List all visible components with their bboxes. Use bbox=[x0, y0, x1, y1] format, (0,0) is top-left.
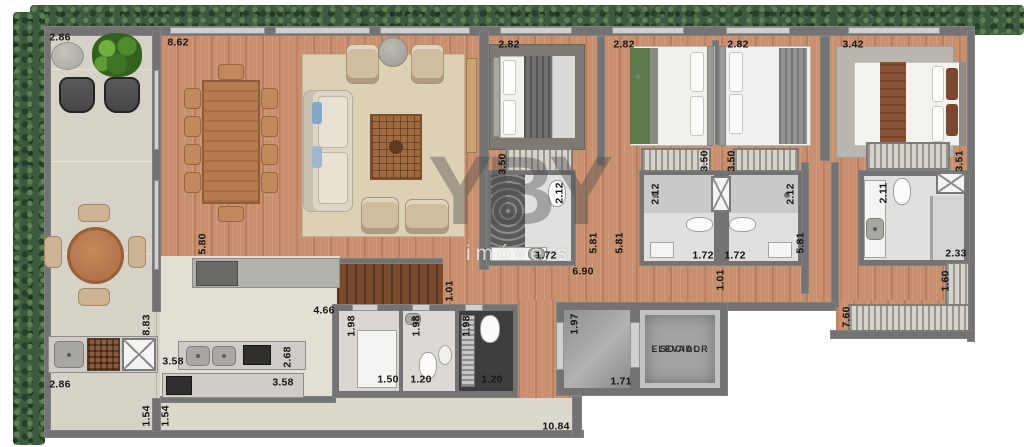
dim-hall-cell-depth: 1.97 bbox=[570, 313, 581, 334]
side-table-round bbox=[378, 37, 408, 67]
master-bath-shaft bbox=[936, 172, 966, 194]
dark-deck-floor bbox=[337, 264, 443, 304]
dim-bedroom1-width: 2.82 bbox=[498, 40, 519, 51]
dim-counter-width-b: 3.58 bbox=[272, 378, 293, 389]
dim-hall-cell-width: 1.71 bbox=[610, 377, 631, 388]
dim-master-width: 3.42 bbox=[842, 40, 863, 51]
service-door-2 bbox=[412, 304, 430, 311]
bedroom3-pillow-1 bbox=[729, 52, 743, 92]
wall-bed3-master bbox=[820, 36, 830, 161]
bedroom1-blanket-foot bbox=[552, 56, 575, 138]
bedroom1-bed-headboard bbox=[493, 57, 500, 137]
elevator-label: ELEVADOR SOCIAL bbox=[640, 310, 720, 388]
dim-bath3-depth: 2.12 bbox=[786, 183, 797, 204]
dim-service-bath-width: 1.20 bbox=[481, 375, 502, 386]
kitchen-island-cooktop bbox=[196, 261, 238, 286]
dining-chair bbox=[261, 172, 278, 193]
elevator-door-gap-2 bbox=[630, 322, 640, 368]
master-bath-toilet bbox=[893, 178, 911, 205]
dim-hall-depth-c: 5.81 bbox=[796, 232, 807, 253]
dim-kitchen-width: 4.66 bbox=[313, 306, 334, 317]
floor-plan: ELEVADOR SOCIAL YBY imóveis 2.86 8.62 2.… bbox=[0, 0, 1024, 447]
service-door-1 bbox=[352, 304, 378, 311]
sofa-cushion-2 bbox=[318, 152, 348, 204]
master-bath-sink bbox=[866, 218, 884, 240]
dim-laundry-width: 1.50 bbox=[377, 375, 398, 386]
dim-bbq-width: 2.86 bbox=[49, 380, 70, 391]
dim-living-depth: 5.80 bbox=[198, 233, 209, 254]
bottom-corridor-floor bbox=[160, 398, 574, 432]
window-bedroom2 bbox=[612, 27, 684, 34]
wall-bed1-bed2 bbox=[597, 36, 605, 166]
elevator-door-gap-1 bbox=[556, 322, 564, 370]
window-master bbox=[848, 27, 940, 34]
dim-bedroom3-depth: 3.50 bbox=[727, 150, 738, 171]
bedroom2-bolster bbox=[650, 48, 658, 144]
master-headboard bbox=[959, 62, 966, 146]
bedroom3-pillow-2 bbox=[729, 94, 743, 134]
master-cushion-2 bbox=[946, 104, 958, 136]
window-living-1 bbox=[170, 27, 265, 34]
bedroom2-headboard bbox=[707, 46, 714, 146]
balcony-round-table bbox=[67, 227, 124, 284]
dim-service-pass-a: 1.54 bbox=[142, 405, 153, 426]
dim-bath2-width: 1.72 bbox=[692, 251, 713, 262]
bbq-grill bbox=[87, 338, 120, 371]
armchair-top-2 bbox=[411, 44, 444, 84]
balcony-table-chair-n bbox=[78, 204, 110, 222]
bedroom3-headboard bbox=[719, 46, 726, 146]
dim-living-width: 8.62 bbox=[167, 38, 188, 49]
dim-bath2-depth: 2.12 bbox=[651, 183, 662, 204]
dim-bath3-width: 1.72 bbox=[724, 251, 745, 262]
dim-hall-length: 6.90 bbox=[572, 267, 593, 278]
dim-pass-living: 1.01 bbox=[445, 280, 456, 301]
dim-hall-depth-b: 5.81 bbox=[615, 232, 626, 253]
wall-left bbox=[44, 30, 51, 438]
coffee-table-bowl bbox=[389, 140, 403, 154]
dining-table bbox=[202, 80, 260, 204]
bedroom2-pillow-1 bbox=[690, 52, 704, 92]
armchair-bottom-1 bbox=[361, 197, 399, 234]
service-bath-toilet bbox=[480, 315, 500, 343]
dim-service-bath-depth: 1.98 bbox=[462, 315, 473, 336]
sofa-pillow-blue-2 bbox=[312, 146, 322, 168]
dim-closet-depth: 1.60 bbox=[941, 270, 952, 291]
dining-chair-head-n bbox=[218, 64, 244, 80]
wall-master-suite bbox=[831, 162, 839, 308]
wardrobe-bedroom3 bbox=[733, 148, 799, 172]
balcony-door-glass-a bbox=[154, 70, 159, 150]
dim-bath1-depth: 2.12 bbox=[555, 182, 566, 203]
tv-console bbox=[466, 58, 477, 153]
sofa-cushion-1 bbox=[318, 96, 348, 148]
dining-chair-head-s bbox=[218, 206, 244, 222]
dining-chair bbox=[184, 116, 201, 137]
bedroom1-blanket bbox=[524, 56, 552, 138]
bbq-shaft bbox=[122, 338, 156, 371]
wardrobe-master bbox=[866, 142, 950, 170]
dining-chair bbox=[261, 116, 278, 137]
bbq-sink bbox=[54, 341, 84, 368]
dining-chair bbox=[261, 88, 278, 109]
balcony-table-chair-s bbox=[78, 288, 110, 306]
dim-counter-depth: 2.68 bbox=[283, 346, 294, 367]
bath2-vanity bbox=[650, 242, 674, 258]
master-runner-brown bbox=[880, 62, 906, 146]
dim-bedroom1-depth: 3.50 bbox=[498, 153, 509, 174]
dim-service-pass-b: 1.54 bbox=[161, 405, 172, 426]
dim-bedroom3-width: 2.82 bbox=[727, 40, 748, 51]
wc-heater bbox=[438, 345, 452, 365]
dining-chair bbox=[184, 144, 201, 165]
dim-corridor-right-depth: 7.60 bbox=[842, 306, 853, 327]
armchair-bottom-2 bbox=[405, 199, 449, 234]
balcony-table-chair-w bbox=[44, 236, 62, 268]
window-bedroom1 bbox=[500, 27, 572, 34]
kitchen-sink-2 bbox=[212, 346, 236, 366]
dim-bedroom2-depth: 3.50 bbox=[700, 150, 711, 171]
bedroom1-pillow-1 bbox=[503, 60, 516, 95]
plant bbox=[92, 33, 142, 77]
sofa-pillow-blue-1 bbox=[312, 102, 322, 124]
bath23-shaft bbox=[711, 176, 731, 212]
dim-bedroom2-width: 2.82 bbox=[613, 40, 634, 51]
stone-table bbox=[51, 42, 84, 70]
master-pillow-2 bbox=[932, 106, 944, 142]
bedroom2-runner-green bbox=[630, 48, 650, 144]
bath3-toilet bbox=[729, 217, 756, 232]
dim-master-depth: 3.51 bbox=[955, 150, 966, 171]
dim-wc-width: 1.20 bbox=[410, 375, 431, 386]
service-door-3 bbox=[465, 304, 483, 311]
master-closet-h bbox=[848, 304, 970, 332]
bath3-vanity bbox=[768, 242, 792, 258]
wall-strip-right bbox=[572, 396, 582, 438]
elevator-label-line2: SOCIAL bbox=[660, 344, 700, 354]
dim-counter-width-a: 3.58 bbox=[162, 357, 183, 368]
dim-hall-depth-a: 5.81 bbox=[589, 232, 600, 253]
armchair-top-1 bbox=[346, 44, 379, 84]
wall-bottom-outer bbox=[44, 430, 584, 438]
dining-chair bbox=[261, 144, 278, 165]
dim-balcony-depth: 8.83 bbox=[142, 314, 153, 335]
balcony-chair-1 bbox=[59, 77, 95, 113]
bath2-toilet bbox=[686, 217, 713, 232]
kitchen-sink-1 bbox=[186, 346, 210, 366]
balcony-door-glass-b bbox=[154, 180, 159, 270]
balcony-chair-2 bbox=[104, 77, 140, 113]
bedroom1-pillow-2 bbox=[503, 100, 516, 135]
master-cushion-1 bbox=[946, 68, 958, 100]
window-bedroom3 bbox=[726, 27, 790, 34]
hedge-left bbox=[13, 12, 45, 445]
dim-service-corridor-length: 10.84 bbox=[542, 422, 569, 433]
master-pillow-1 bbox=[932, 66, 944, 102]
window-living-3 bbox=[380, 27, 470, 34]
kitchen-stove bbox=[243, 345, 271, 365]
dim-wc-depth: 1.98 bbox=[412, 315, 423, 336]
dim-balcony-width-top: 2.86 bbox=[49, 33, 70, 44]
dim-pass-hall: 1.01 bbox=[716, 269, 727, 290]
bedroom2-pillow-2 bbox=[690, 96, 704, 136]
dining-chair bbox=[184, 88, 201, 109]
dim-laundry-depth: 1.98 bbox=[347, 315, 358, 336]
kitchen-oven bbox=[166, 376, 192, 395]
window-living-2 bbox=[275, 27, 370, 34]
bath1-shower bbox=[491, 175, 525, 247]
dim-master-bath-width: 2.33 bbox=[945, 249, 966, 260]
dining-chair bbox=[184, 172, 201, 193]
bedroom3-blanket bbox=[779, 48, 807, 144]
dim-master-bath-depth: 2.11 bbox=[879, 183, 890, 204]
dim-bath1-width: 1.72 bbox=[535, 251, 556, 262]
balcony-table-chair-e bbox=[128, 236, 146, 268]
